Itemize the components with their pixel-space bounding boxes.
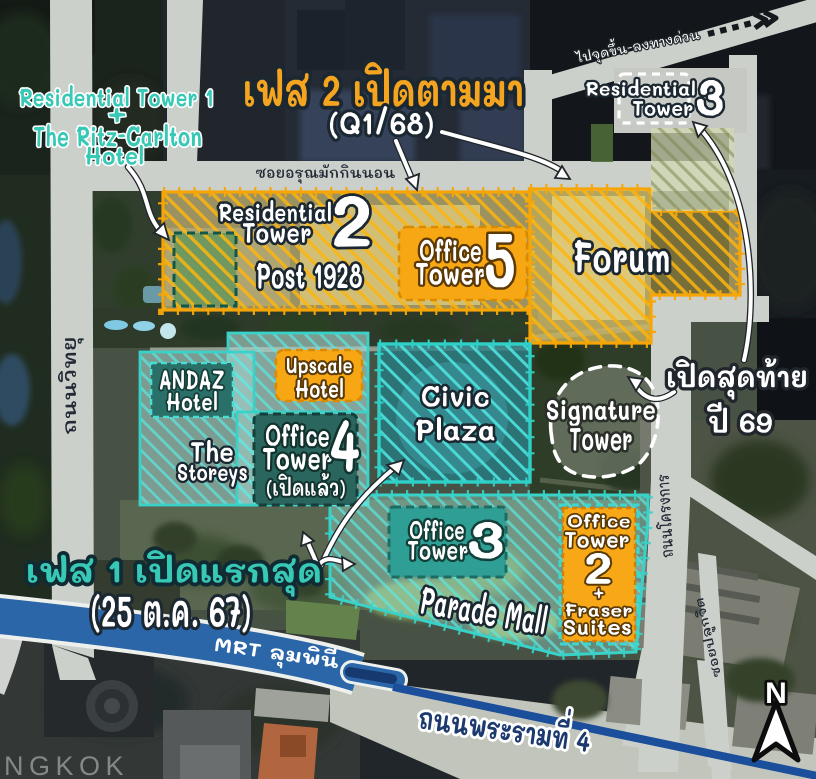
svg-text:N: N [765,677,787,710]
svg-text:NGKOK: NGKOK [4,751,129,779]
